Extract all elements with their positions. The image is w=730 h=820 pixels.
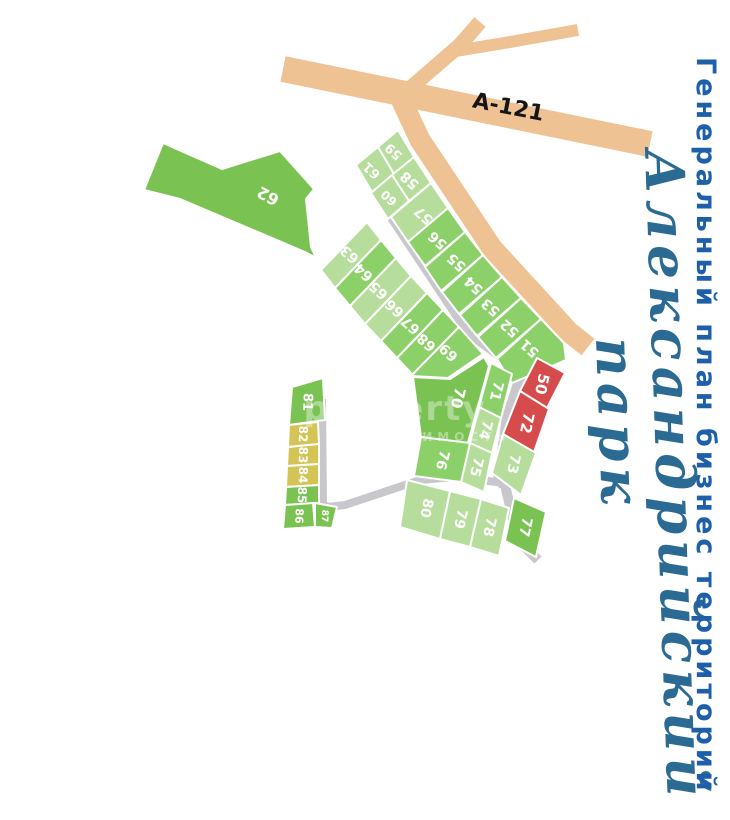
- page-title: Генеральный план бизнес территорий: [690, 57, 721, 795]
- plot-62-shape: [144, 143, 316, 258]
- plot-86-label: 86: [292, 508, 306, 524]
- watermark-word: property: [303, 389, 486, 429]
- site-plan-map: 6259615860575655545352516364656667686970…: [0, 0, 730, 820]
- plot-87-label: 87: [319, 510, 329, 523]
- plot-85-label: 85: [295, 486, 310, 503]
- site-plan-page: 6259615860575655545352516364656667686970…: [0, 0, 730, 820]
- plot-84-label: 84: [296, 466, 311, 483]
- plot-83-label: 83: [296, 446, 311, 463]
- road-north-branch: [400, 22, 480, 97]
- park-name-line2: парк: [583, 336, 653, 511]
- road-highway-a121: [283, 69, 650, 144]
- watermark-subline: НЕДВИЖИМОСТЬ: [329, 430, 510, 444]
